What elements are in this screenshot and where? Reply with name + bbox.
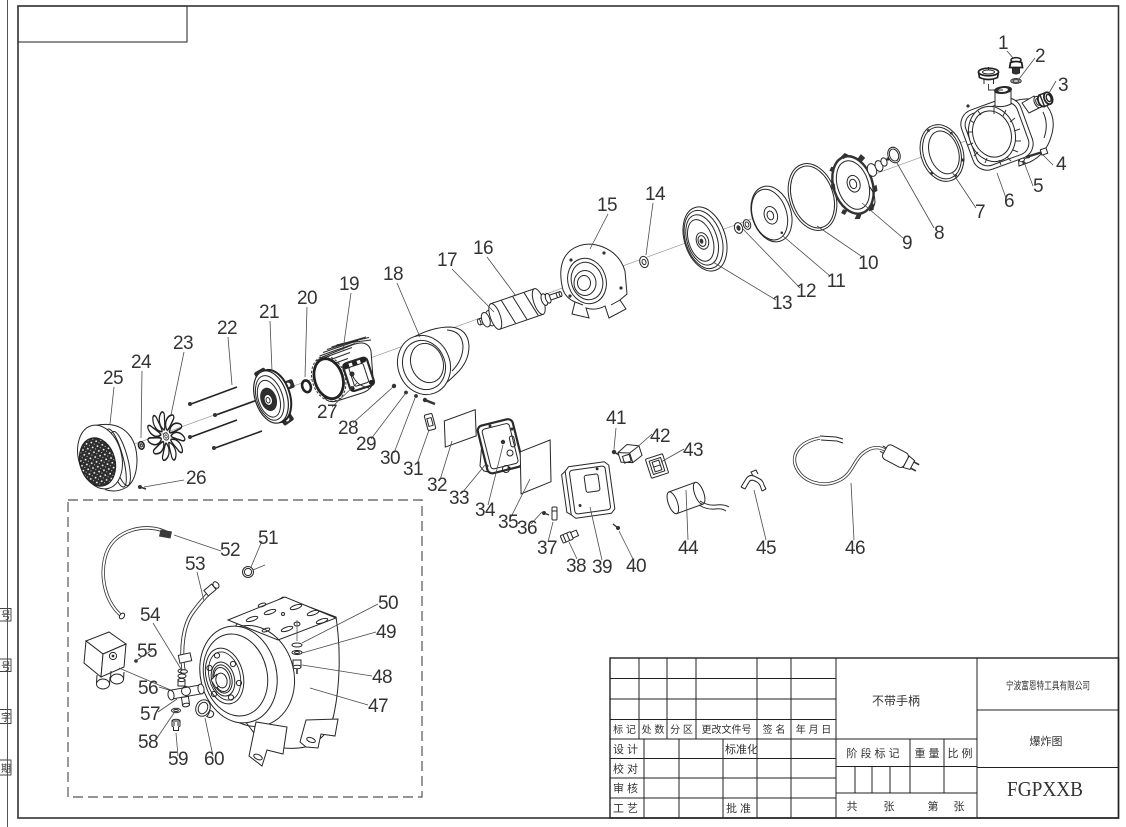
svg-text:55: 55 [137,641,157,662]
svg-text:第: 第 [928,799,939,813]
svg-text:46: 46 [845,538,865,559]
svg-text:52: 52 [220,540,240,561]
svg-text:FGPXXB: FGPXXB [1007,777,1083,801]
svg-text:60: 60 [204,749,224,770]
svg-text:44: 44 [678,538,699,559]
svg-text:51: 51 [258,528,278,549]
svg-text:设 计: 设 计 [613,743,638,756]
svg-text:50: 50 [378,593,398,614]
svg-text:34: 34 [475,500,496,521]
svg-text:23: 23 [173,333,193,354]
svg-text:11: 11 [827,271,846,292]
svg-text:签 名: 签 名 [763,723,786,736]
svg-text:阶 段 标 记: 阶 段 标 记 [846,746,899,760]
svg-text:53: 53 [185,554,205,575]
svg-text:比 例: 比 例 [947,746,972,760]
svg-text:张: 张 [884,800,895,813]
svg-text:共: 共 [847,800,858,813]
svg-text:号: 号 [1,610,11,622]
svg-text:59: 59 [168,749,188,770]
svg-text:2: 2 [1035,46,1045,67]
svg-text:36: 36 [517,518,537,539]
svg-text:更改文件号: 更改文件号 [702,723,752,736]
svg-text:24: 24 [131,352,152,373]
svg-text:31: 31 [403,459,423,480]
svg-text:审 核: 审 核 [613,781,638,795]
svg-text:57: 57 [140,704,160,725]
svg-text:29: 29 [356,434,376,455]
svg-text:标 记: 标 记 [613,724,636,736]
svg-text:56: 56 [138,678,158,699]
svg-text:54: 54 [140,605,161,626]
svg-text:30: 30 [380,448,400,469]
svg-text:41: 41 [606,408,626,429]
svg-text:42: 42 [650,426,670,447]
svg-text:21: 21 [259,302,279,323]
svg-text:爆炸图: 爆炸图 [1030,734,1063,748]
svg-text:批 准: 批 准 [726,801,751,815]
svg-text:期: 期 [1,763,11,775]
svg-text:48: 48 [372,667,392,688]
svg-text:19: 19 [339,274,359,295]
svg-text:49: 49 [376,622,396,643]
svg-text:6: 6 [1004,191,1014,212]
svg-text:14: 14 [645,184,666,205]
svg-text:字: 字 [1,711,11,724]
svg-text:张: 张 [954,800,965,813]
svg-text:18: 18 [383,264,403,285]
svg-text:39: 39 [592,557,612,578]
svg-text:分 区: 分 区 [670,724,693,736]
svg-text:22: 22 [217,318,237,339]
svg-text:35: 35 [498,512,518,533]
svg-text:15: 15 [597,195,617,216]
svg-text:38: 38 [566,556,586,577]
svg-text:58: 58 [138,732,158,753]
svg-text:重 量: 重 量 [914,746,939,760]
svg-text:13: 13 [772,293,792,314]
svg-text:8: 8 [934,223,944,244]
svg-text:33: 33 [449,488,469,509]
svg-text:3: 3 [1058,75,1068,96]
svg-text:年 月 日: 年 月 日 [796,723,832,736]
svg-text:20: 20 [297,288,317,309]
svg-text:25: 25 [103,368,123,389]
svg-text:12: 12 [796,281,816,302]
svg-text:40: 40 [626,556,646,577]
svg-text:工 艺: 工 艺 [613,802,638,815]
svg-text:45: 45 [756,538,776,559]
svg-text:5: 5 [1033,176,1043,197]
svg-text:1: 1 [998,33,1008,54]
svg-text:32: 32 [427,475,447,496]
svg-text:43: 43 [683,440,703,461]
svg-text:宁波富恩特工具有限公司: 宁波富恩特工具有限公司 [1006,679,1090,692]
svg-text:10: 10 [858,253,878,274]
svg-text:不带手柄: 不带手柄 [872,694,920,708]
svg-text:37: 37 [537,538,557,559]
svg-text:16: 16 [473,238,493,259]
svg-text:9: 9 [902,233,912,254]
svg-text:标准化: 标准化 [725,742,758,756]
svg-text:号: 号 [1,661,11,673]
svg-text:校 对: 校 对 [613,762,638,776]
svg-text:28: 28 [338,418,358,439]
svg-text:处 数: 处 数 [642,723,665,736]
svg-text:26: 26 [186,468,206,489]
svg-text:47: 47 [368,696,388,717]
svg-text:17: 17 [437,250,457,271]
svg-text:7: 7 [975,202,985,223]
svg-text:27: 27 [317,402,337,423]
svg-text:4: 4 [1056,154,1067,175]
